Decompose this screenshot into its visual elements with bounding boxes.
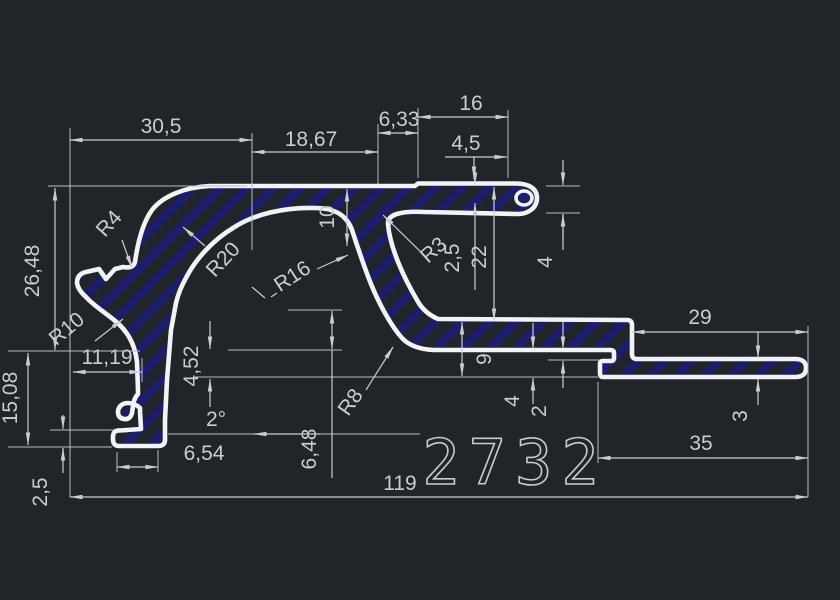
- dim-angle-2: 2°: [206, 408, 226, 431]
- screw-port-hole: [516, 191, 532, 205]
- dim-30-5: 30,5: [141, 115, 182, 138]
- dim-11-19: 11,19: [82, 346, 133, 369]
- dim-2-5-foot: 2,5: [29, 477, 52, 506]
- dim-2: 2: [528, 405, 551, 417]
- dim-4-top: 4: [534, 256, 557, 268]
- dim-18-67: 18,67: [285, 128, 338, 151]
- dim-4-5: 4,5: [451, 132, 480, 155]
- drawing-canvas[interactable]: 30,5 18,67 6,33 16 4,5 4 2,5 22 10 26,48…: [0, 0, 840, 600]
- dim-16: 16: [459, 92, 482, 115]
- dim-4-mid: 4: [501, 395, 524, 407]
- dim-3: 3: [729, 410, 752, 422]
- dim-4-52: 4,52: [180, 346, 203, 387]
- dim-6-54: 6,54: [184, 442, 225, 465]
- dim-119: 119: [383, 472, 416, 495]
- dim-9: 9: [473, 353, 496, 365]
- dim-22: 22: [468, 245, 491, 268]
- dim-10: 10: [316, 205, 339, 228]
- dim-6-48: 6,48: [298, 429, 321, 470]
- dim-29: 29: [688, 306, 711, 329]
- dim-15-08: 15,08: [0, 372, 22, 425]
- dim-35: 35: [689, 432, 712, 455]
- dim-26-48: 26,48: [21, 245, 44, 298]
- part-number: 2732: [422, 426, 607, 499]
- dim-6-33: 6,33: [379, 108, 420, 131]
